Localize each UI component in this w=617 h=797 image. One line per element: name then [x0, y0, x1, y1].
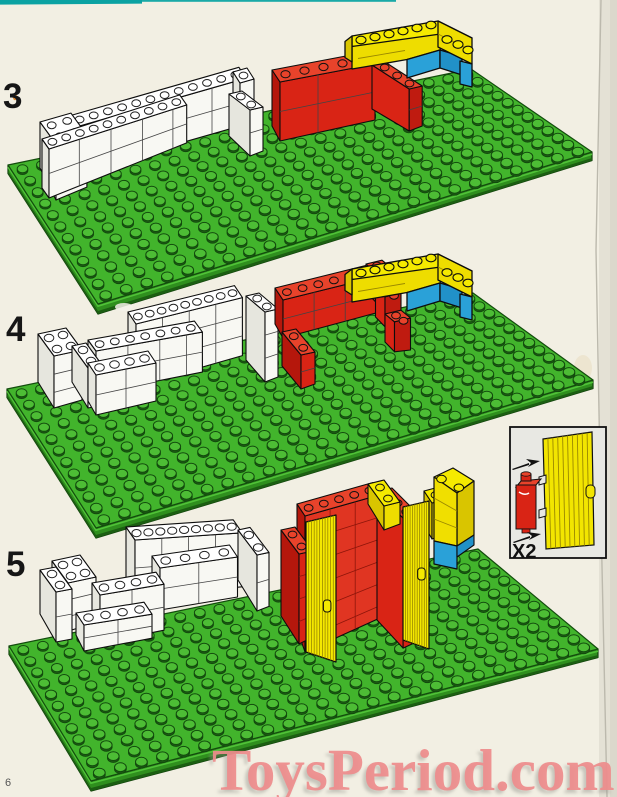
svg-text:6: 6 [5, 777, 11, 789]
svg-text:X2: X2 [512, 541, 536, 563]
svg-text:ToysPeriod.com: ToysPeriod.com [212, 737, 615, 797]
svg-text:4: 4 [6, 310, 26, 349]
svg-text:3: 3 [3, 77, 22, 116]
svg-text:5: 5 [6, 545, 25, 584]
